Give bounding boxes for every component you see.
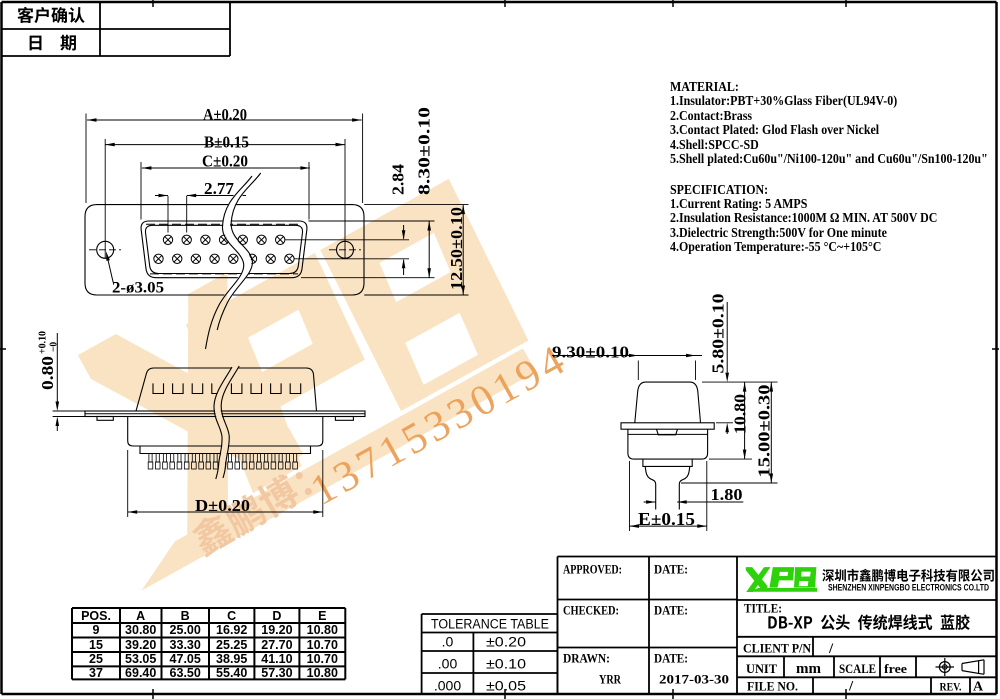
svg-text:12.50±0.10: 12.50±0.10 xyxy=(447,207,466,290)
svg-text:.000: .000 xyxy=(434,677,461,693)
svg-text:TITLE:: TITLE: xyxy=(744,601,782,616)
svg-text:APPROVED:: APPROVED: xyxy=(563,562,622,577)
svg-text:1.80: 1.80 xyxy=(711,485,743,504)
svg-text:B±0.15: B±0.15 xyxy=(204,133,249,152)
svg-text:±0.05: ±0.05 xyxy=(486,677,526,693)
svg-text:A±0.20: A±0.20 xyxy=(203,105,247,124)
svg-text:DATE:: DATE: xyxy=(654,603,688,618)
svg-text:CLIENT P/N: CLIENT P/N xyxy=(743,641,812,656)
svg-text:2017-03-30: 2017-03-30 xyxy=(659,672,729,687)
svg-text:.00: .00 xyxy=(438,656,458,672)
svg-text:10.80: 10.80 xyxy=(731,394,750,434)
svg-text:+0.10: +0.10 xyxy=(38,331,49,354)
svg-text:FILE NO.: FILE NO. xyxy=(747,678,798,693)
svg-text:C±0.20: C±0.20 xyxy=(202,152,248,171)
svg-text:2.84: 2.84 xyxy=(389,164,408,195)
svg-text:CHECKED:: CHECKED: xyxy=(563,603,619,618)
svg-text:REV.: REV. xyxy=(940,681,962,693)
svg-text:SCALE: SCALE xyxy=(839,661,876,676)
svg-text:8.30±0.10: 8.30±0.10 xyxy=(414,107,433,195)
svg-text:free: free xyxy=(884,661,907,676)
svg-text:mm: mm xyxy=(796,661,821,677)
svg-text:TOLERANCE TABLE: TOLERANCE TABLE xyxy=(431,617,549,632)
svg-text:2.77: 2.77 xyxy=(204,179,234,198)
svg-text:0.80: 0.80 xyxy=(38,356,57,390)
svg-text:5.80±0.10: 5.80±0.10 xyxy=(709,294,728,374)
svg-text:SHENZHEN XINPENGBO ELECTRONICS: SHENZHEN XINPENGBO ELECTRONICS CO.LTD xyxy=(828,583,989,593)
svg-text:±0.20: ±0.20 xyxy=(486,633,526,649)
svg-text:DATE:: DATE: xyxy=(654,562,688,577)
svg-text:9.30±0.10: 9.30±0.10 xyxy=(552,343,629,362)
svg-text:YRR: YRR xyxy=(599,672,621,687)
svg-text:2-ø3.05: 2-ø3.05 xyxy=(112,280,164,297)
svg-text:UNIT: UNIT xyxy=(746,661,777,676)
svg-text:/: / xyxy=(848,679,854,695)
svg-text:E±0.15: E±0.15 xyxy=(638,509,695,529)
svg-text:A: A xyxy=(973,680,984,695)
svg-text:DRAWN:: DRAWN: xyxy=(563,651,610,666)
svg-text:DATE:: DATE: xyxy=(654,651,688,666)
svg-text:.0: .0 xyxy=(442,633,454,649)
svg-text:±0.10: ±0.10 xyxy=(486,656,526,672)
svg-text:D±0.20: D±0.20 xyxy=(195,496,250,515)
svg-text:15.00±0.30: 15.00±0.30 xyxy=(754,385,773,478)
svg-text:/: / xyxy=(828,641,834,657)
svg-text:−0: −0 xyxy=(49,342,60,352)
